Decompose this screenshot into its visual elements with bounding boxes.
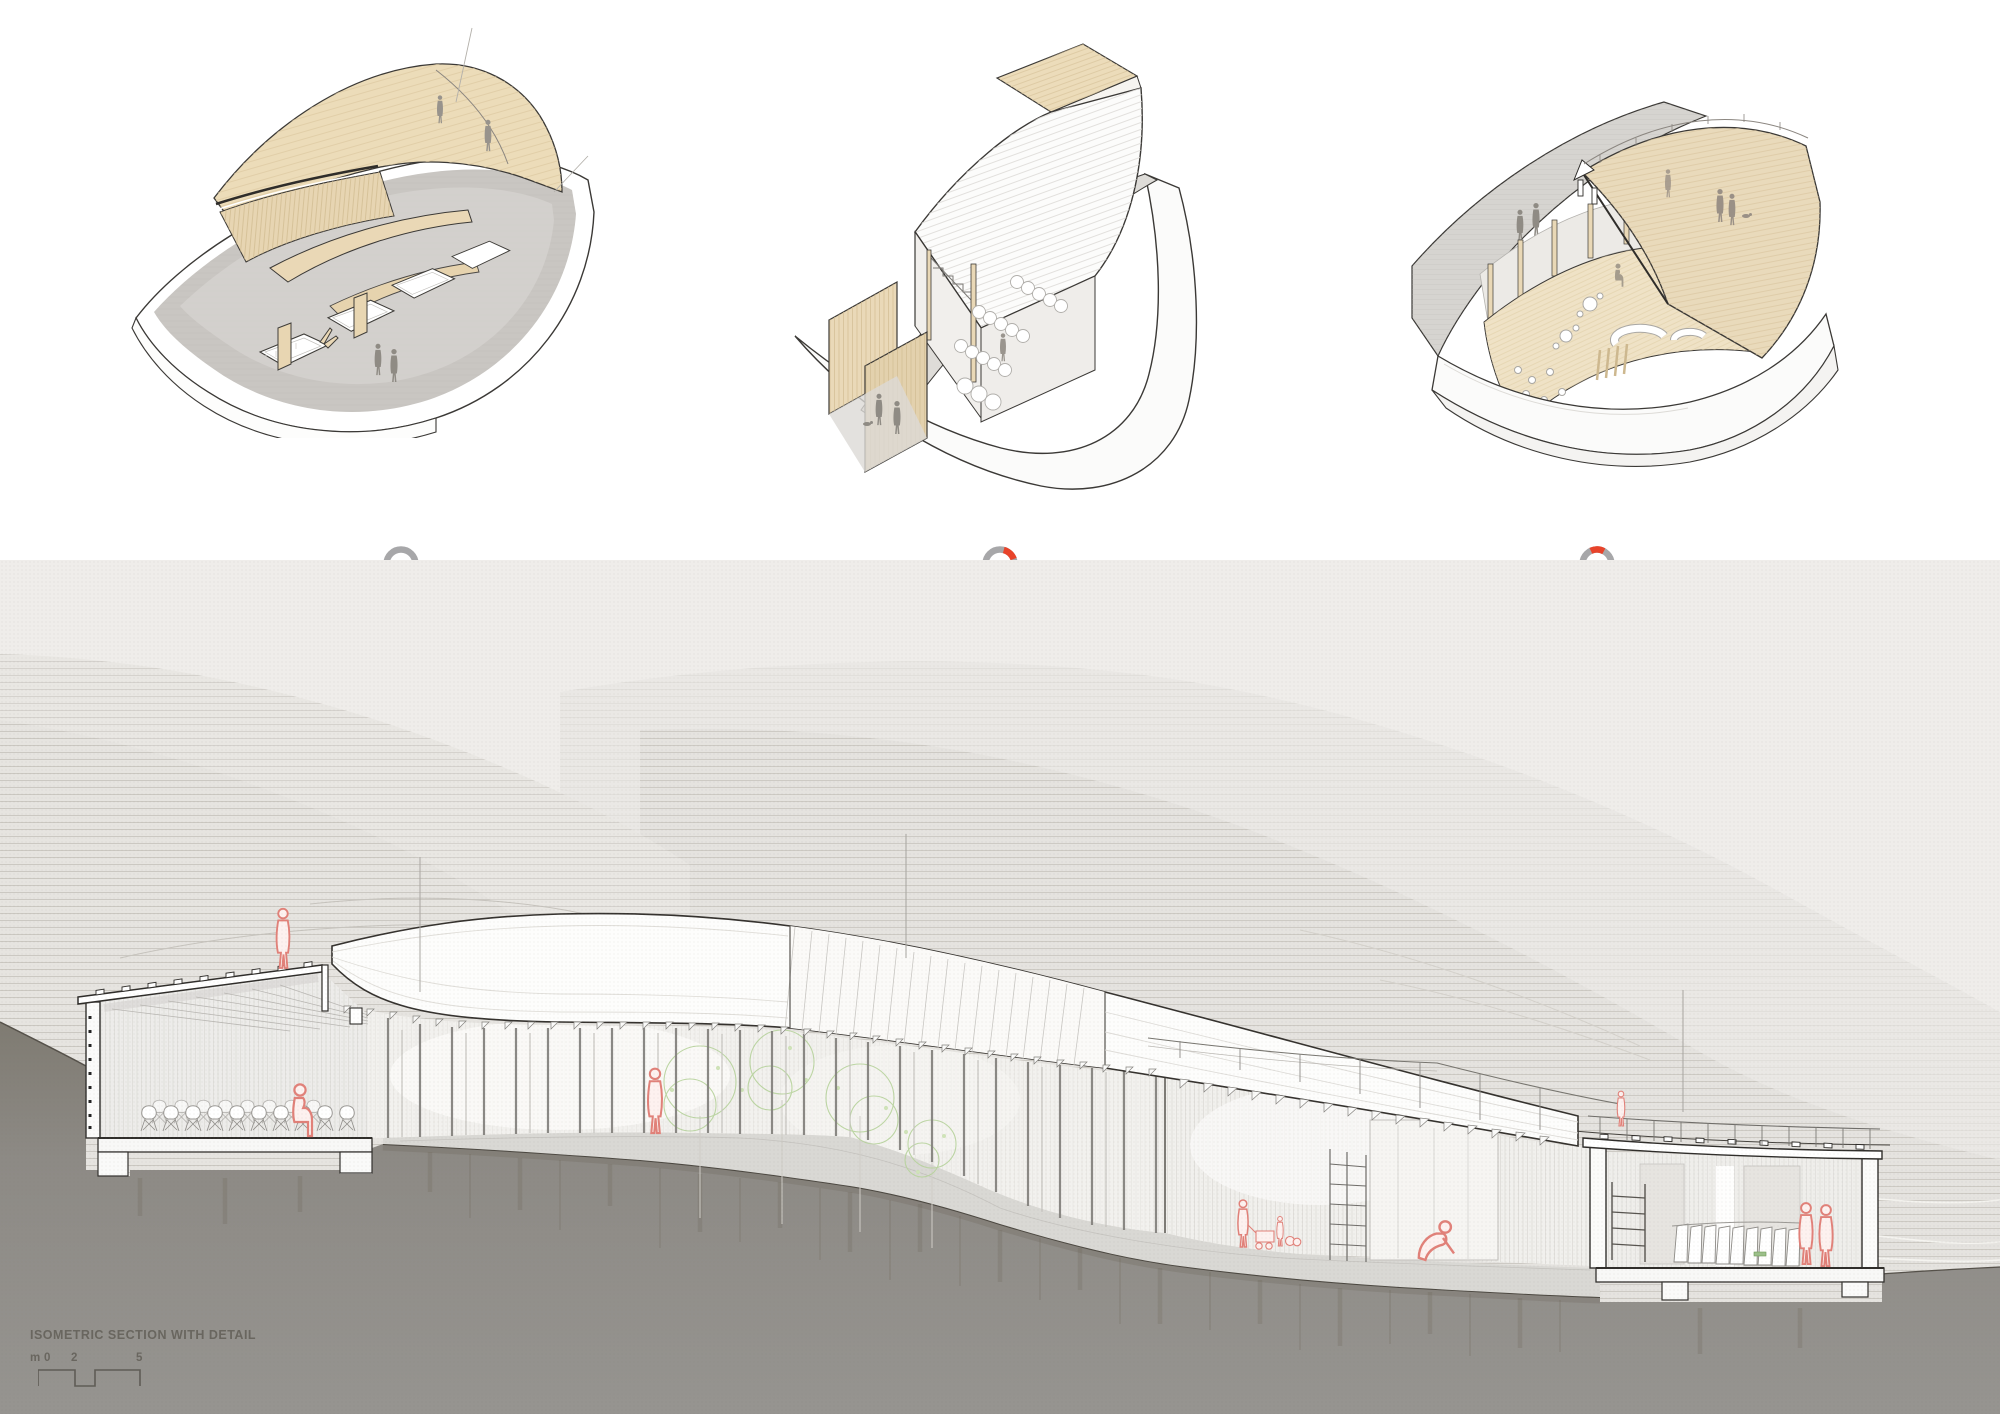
- presentation-board: RESOURCE COLLECTION ZONE The recycling c…: [0, 0, 2000, 1414]
- footing: [1842, 1282, 1868, 1297]
- cut-wall-left: [86, 1002, 100, 1138]
- section-label: ISOMETRIC SECTION WITH DETAIL: [30, 1328, 256, 1342]
- cut-wall: [1862, 1156, 1878, 1268]
- iso-resource-collection-drawing: [120, 6, 620, 438]
- footing: [340, 1152, 372, 1173]
- timber-post: [971, 264, 976, 382]
- scale-tick-5: 5: [136, 1352, 142, 1364]
- scale-tick-0: 0: [44, 1352, 50, 1364]
- scale-unit: m: [30, 1352, 40, 1364]
- iso-greenhouse-drawing: [765, 14, 1235, 522]
- ridge-strut: [322, 965, 328, 1011]
- scale-bar: [38, 1368, 148, 1390]
- floor-slab: [98, 1138, 372, 1152]
- scale-numbers: m 0 2 5: [30, 1352, 190, 1368]
- right-room: [1574, 1116, 1890, 1300]
- beam-block: [350, 1008, 362, 1024]
- footing: [98, 1152, 128, 1176]
- left-room: [78, 962, 372, 1176]
- isometric-section-drawing: [0, 560, 2000, 1414]
- floor-slab: [1596, 1268, 1884, 1282]
- footing: [1662, 1282, 1688, 1300]
- timber-post: [927, 250, 931, 340]
- scale-tick-2: 2: [71, 1352, 77, 1364]
- iso-community-room-drawing: [1368, 52, 1856, 482]
- green-crate: [1754, 1252, 1766, 1256]
- waste-bins: [1674, 1224, 1800, 1266]
- cut-wall: [1590, 1146, 1606, 1268]
